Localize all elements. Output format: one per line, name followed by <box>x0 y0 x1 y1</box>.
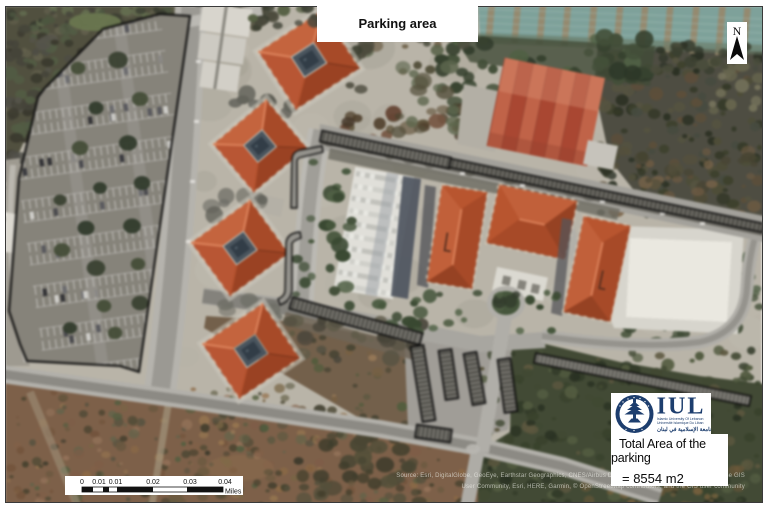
svg-text:0.04: 0.04 <box>218 479 232 486</box>
svg-text:الجامعة الإسلامية في لبنان: الجامعة الإسلامية في لبنان <box>657 426 711 433</box>
svg-text:0.03: 0.03 <box>183 479 197 486</box>
svg-text:0.02: 0.02 <box>146 479 160 486</box>
svg-text:0.01: 0.01 <box>92 479 106 486</box>
svg-text:Miles: Miles <box>225 489 242 496</box>
svg-text:N: N <box>733 24 742 38</box>
svg-text:Université Islamique Du Liban: Université Islamique Du Liban <box>657 421 704 425</box>
svg-text:0.01: 0.01 <box>109 479 123 486</box>
svg-text:0: 0 <box>80 479 84 486</box>
svg-text:IUL: IUL <box>657 394 706 420</box>
